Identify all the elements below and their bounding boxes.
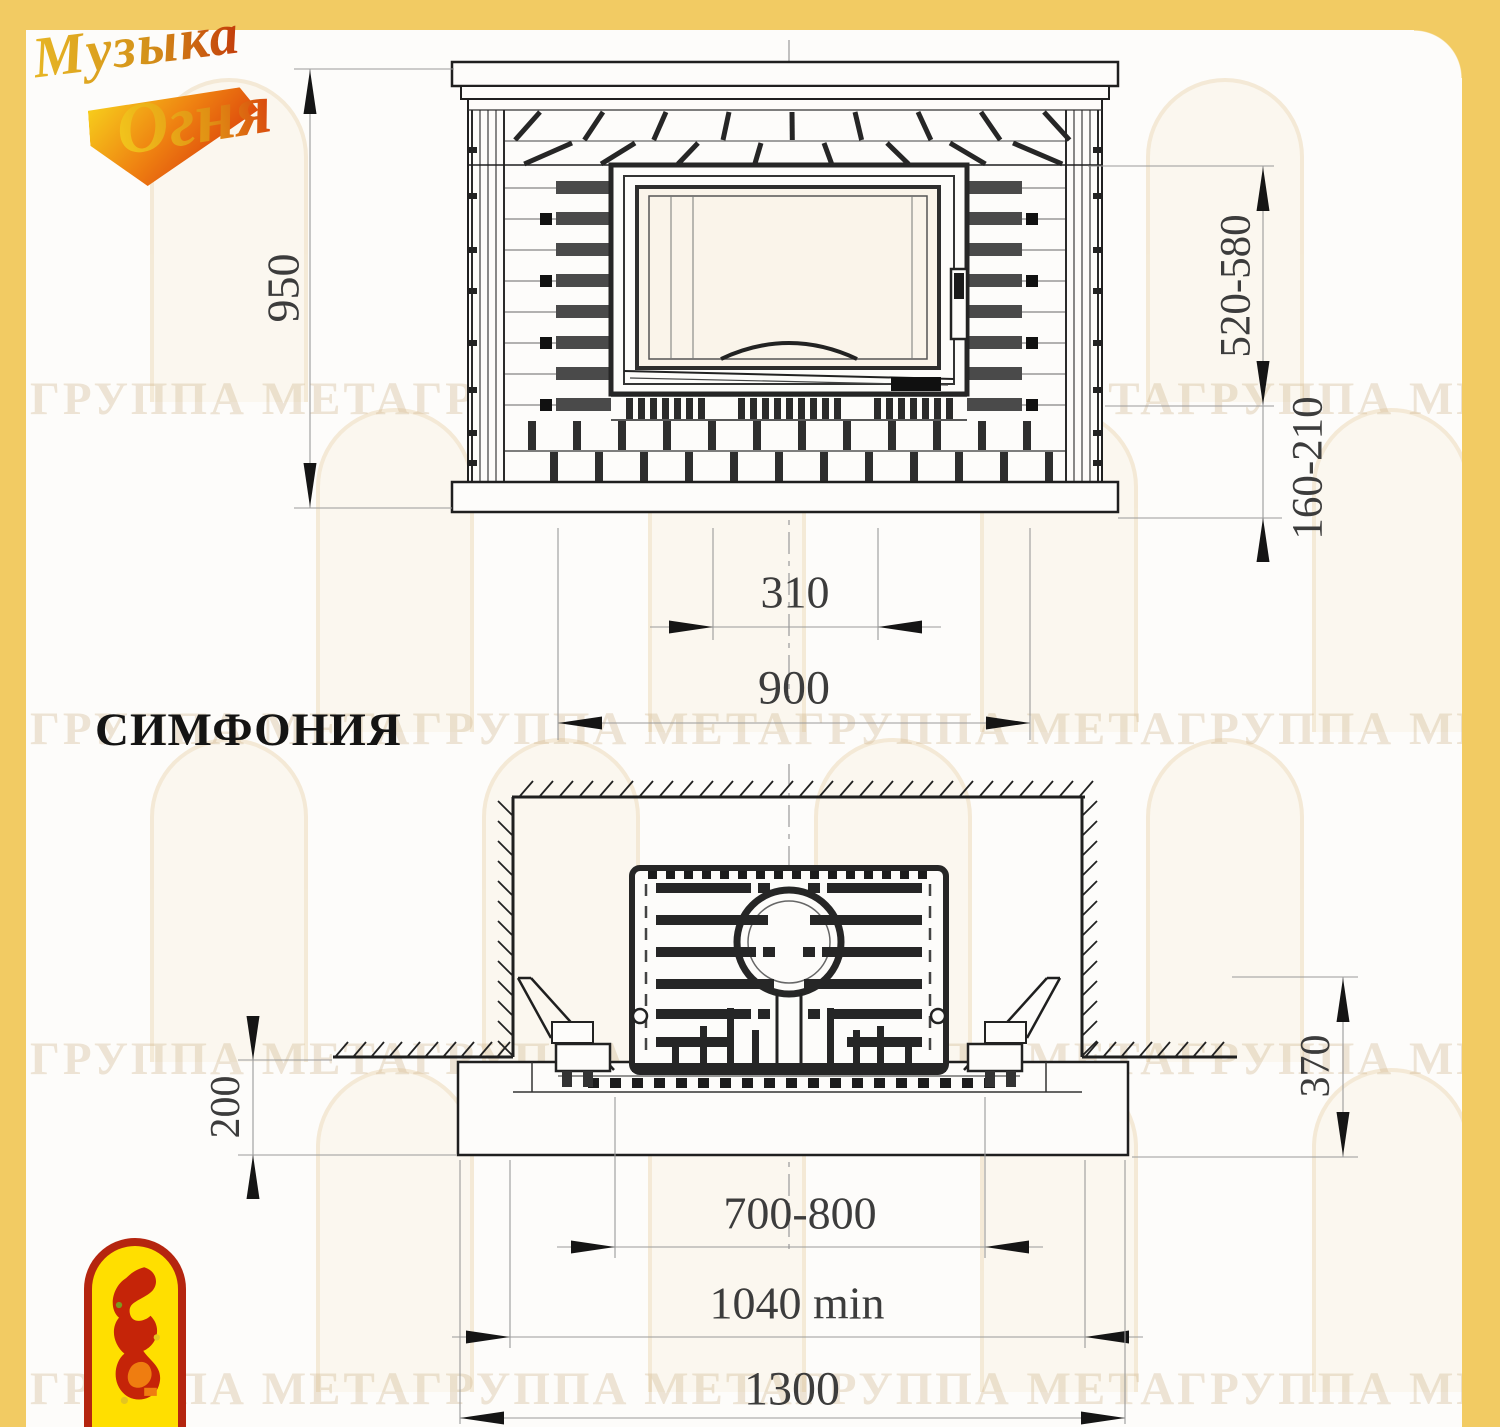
dim-front-opening-width: 310 — [761, 566, 830, 619]
flame-dancer-icon — [92, 1246, 182, 1427]
dim-front-hearth-height: 160-210 — [1284, 396, 1333, 539]
model-title: СИМФОНИЯ — [95, 703, 402, 757]
dim-plan-total-width: 1300 — [744, 1362, 840, 1417]
frame-corner — [1414, 30, 1462, 78]
dim-front-width: 900 — [758, 661, 830, 716]
brand-word-2: Огня — [110, 66, 277, 172]
frame-strip-left — [0, 0, 26, 1427]
brand-emblem — [84, 1238, 186, 1427]
dim-plan-opening-width: 700-800 — [723, 1187, 876, 1240]
frame-strip-right — [1462, 0, 1500, 1427]
dim-front-height: 950 — [257, 254, 310, 323]
dim-plan-side-depth: 370 — [1292, 1035, 1340, 1098]
dim-front-opening-height: 520-580 — [1212, 214, 1261, 357]
drawing-sheet: ГРУППА МЕТАГРУППА МЕТАГРУППА МЕТАГРУППА … — [0, 0, 1500, 1427]
dim-plan-min-width: 1040 min — [709, 1277, 884, 1330]
brand-logo: Музыка Огня — [18, 4, 318, 204]
plan-view-drawing — [333, 764, 1237, 1255]
dim-plan-depth: 200 — [202, 1076, 250, 1139]
